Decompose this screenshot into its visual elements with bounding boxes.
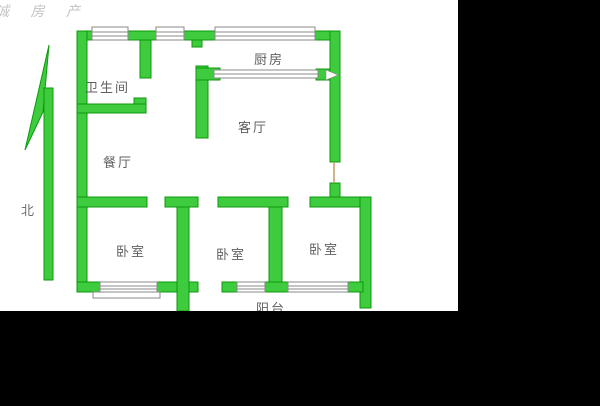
wall-bottom-4 xyxy=(222,282,237,292)
wall-bottom-5 xyxy=(265,282,288,292)
room-label-bedroom1: 卧室 xyxy=(116,241,146,260)
north-arrow-shaft xyxy=(44,88,53,280)
room-label-living: 客厅 xyxy=(238,117,268,136)
wall-mid-3 xyxy=(218,197,288,207)
wall-mid-1 xyxy=(77,197,147,207)
wall-bottom-1 xyxy=(77,282,100,292)
room-label-bedroom3: 卧室 xyxy=(309,239,339,258)
wall-top-2 xyxy=(128,31,156,40)
room-label-bedroom2: 卧室 xyxy=(216,244,246,263)
room-label-bathroom: 卫生间 xyxy=(85,77,130,96)
wall-divider-bed1-bed2 xyxy=(177,207,189,311)
room-label-dining: 餐厅 xyxy=(103,152,133,171)
wall-mid-4 xyxy=(310,197,368,207)
wall-bathroom-right xyxy=(140,40,151,78)
window-top-3 xyxy=(215,27,315,40)
wall-bottom-3 xyxy=(189,282,198,292)
window-balcony-1 xyxy=(237,282,265,292)
window-bed1-sill xyxy=(93,292,160,298)
floorplan-drawing xyxy=(0,0,458,311)
screenshot-root: 诚 房 产 北 卫生间 厨房 客厅 餐厅 卧室 卧室 卧室 阳台 xyxy=(0,0,600,406)
wall-top-3 xyxy=(184,31,215,40)
wall-bathroom-bottom xyxy=(77,104,146,113)
wall-right-upper xyxy=(330,31,340,162)
wall-mid-2 xyxy=(165,197,198,207)
wall-bottom-6 xyxy=(348,282,363,292)
wall-left xyxy=(77,31,87,292)
watermark: 诚 房 产 xyxy=(0,1,89,21)
room-label-kitchen: 厨房 xyxy=(254,49,284,68)
wall-divider-bed2-bed3 xyxy=(269,207,282,292)
window-top-2 xyxy=(156,27,184,40)
window-bed1 xyxy=(100,282,157,292)
wall-bottom-2 xyxy=(157,282,177,292)
window-top-1 xyxy=(92,27,128,40)
compass-north-label: 北 xyxy=(21,200,34,219)
wall-entry-tab xyxy=(192,40,202,47)
window-balcony-2 xyxy=(288,282,348,292)
floorplan-photo: 诚 房 产 北 卫生间 厨房 客厅 餐厅 卧室 卧室 卧室 阳台 xyxy=(0,0,458,311)
room-label-balcony: 阳台 xyxy=(256,298,286,311)
